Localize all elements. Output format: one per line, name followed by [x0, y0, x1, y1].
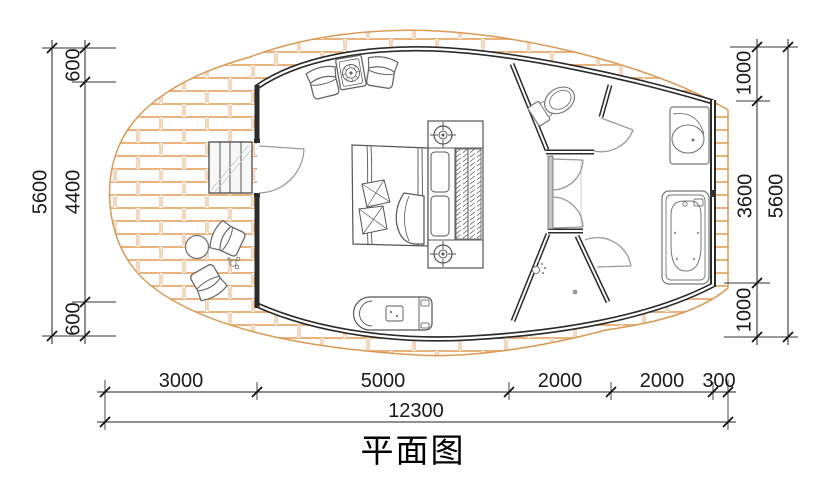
- entry-steps: [209, 142, 252, 193]
- dim-bottom-5000: 5000: [361, 370, 406, 392]
- bathtub: [662, 190, 716, 284]
- vanity-sink: [670, 107, 709, 164]
- shower-head-icon: [532, 266, 539, 273]
- chaise-lounge: [354, 297, 432, 330]
- double-bed: [352, 145, 428, 246]
- dim-right-1000-top: 1000: [733, 51, 755, 96]
- door-jamb-top: [254, 139, 260, 143]
- floor-plan-canvas: 600 4400 600 5600 1000 3600 1000 5600: [0, 0, 837, 496]
- patio-table: [186, 236, 209, 259]
- dim-bottom-3000: 3000: [159, 370, 204, 392]
- dim-bottom-300: 300: [702, 370, 735, 392]
- dim-left-600-top: 600: [62, 48, 84, 81]
- wall-block: [710, 190, 716, 197]
- basin: [672, 125, 704, 153]
- dim-right-1000-bottom: 1000: [733, 288, 755, 333]
- dim-bottom-2000-a: 2000: [538, 370, 583, 392]
- dim-right-3600: 3600: [734, 174, 756, 219]
- faucet-dot: [692, 139, 695, 142]
- dim-left-total-5600: 5600: [29, 170, 51, 215]
- drawing-title: 平面图: [361, 432, 466, 469]
- dim-bottom-total-12300: 12300: [388, 400, 444, 422]
- wardrobe: [428, 121, 483, 268]
- floor-plan-drawing: 600 4400 600 5600 1000 3600 1000 5600: [0, 0, 837, 496]
- side-table: [335, 55, 366, 90]
- dim-left-4400: 4400: [62, 170, 84, 215]
- dim-left-600-bottom: 600: [62, 302, 84, 335]
- dim-right-total-5600: 5600: [765, 174, 787, 219]
- dim-bottom-2000-b: 2000: [640, 370, 685, 392]
- vestibule-wall: [548, 156, 553, 229]
- floor-drain: [573, 290, 578, 295]
